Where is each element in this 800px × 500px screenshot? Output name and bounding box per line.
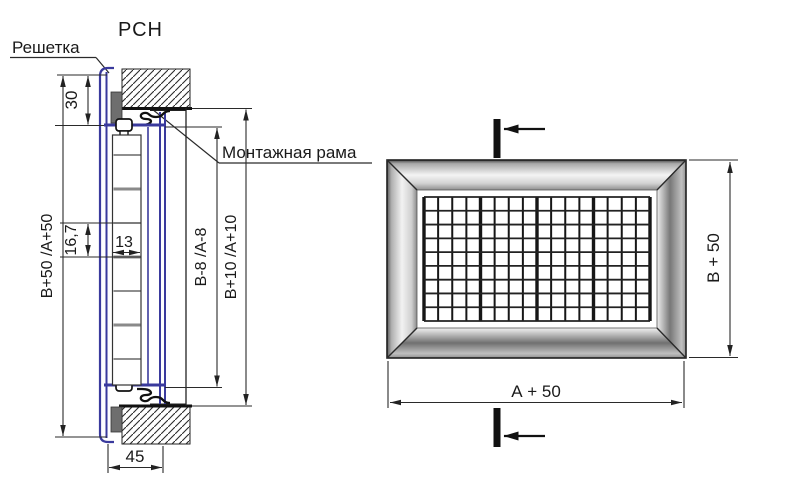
section-cut-marker-bottom	[494, 408, 546, 447]
dim-depth: 45	[109, 447, 162, 468]
dim-front-height: В + 50	[704, 162, 730, 356]
section-view: В+50 /А+50 30 16,7 13 В-8 /А-8 В+10 /А+1…	[39, 68, 252, 473]
svg-text:А + 50: А + 50	[511, 382, 561, 401]
gasket-bottom	[111, 407, 122, 432]
dim-inner-size: В-8 /А-8	[193, 128, 217, 387]
drawing-title: РСН	[118, 19, 163, 41]
svg-text:13: 13	[115, 234, 133, 251]
dim-top-margin: 30	[62, 76, 88, 125]
wall-hatch-top	[122, 69, 190, 108]
mounting-frame-callout: Монтажная рама	[152, 109, 372, 163]
drawing-canvas: РСН Решетка Монтажная рама	[0, 0, 800, 500]
svg-text:В + 50: В + 50	[704, 233, 723, 283]
mounting-frame-profile	[148, 108, 186, 406]
svg-text:45: 45	[126, 447, 145, 466]
slat-column	[113, 135, 142, 385]
svg-text:В+50 /А+50: В+50 /А+50	[39, 214, 56, 299]
svg-text:В-8 /А-8: В-8 /А-8	[193, 228, 210, 287]
grille-callout-label: Решетка	[12, 38, 80, 57]
technical-drawing: РСН Решетка Монтажная рама	[0, 0, 800, 500]
mounting-frame-callout-label: Монтажная рама	[222, 143, 357, 162]
dim-front-width: А + 50	[390, 382, 682, 403]
dim-blade-pitch: 16,7	[63, 224, 88, 256]
section-cut-marker-top	[494, 119, 546, 158]
louver-clip-top	[116, 119, 132, 136]
svg-text:В+10 /А+10: В+10 /А+10	[223, 215, 240, 300]
wall-hatch-bottom	[122, 407, 190, 444]
svg-text:30: 30	[62, 91, 81, 110]
grille-callout: Решетка	[10, 38, 109, 73]
front-view: В + 50 А + 50	[387, 119, 738, 447]
dim-overall-height: В+50 /А+50	[39, 76, 63, 436]
svg-text:16,7: 16,7	[63, 224, 80, 255]
